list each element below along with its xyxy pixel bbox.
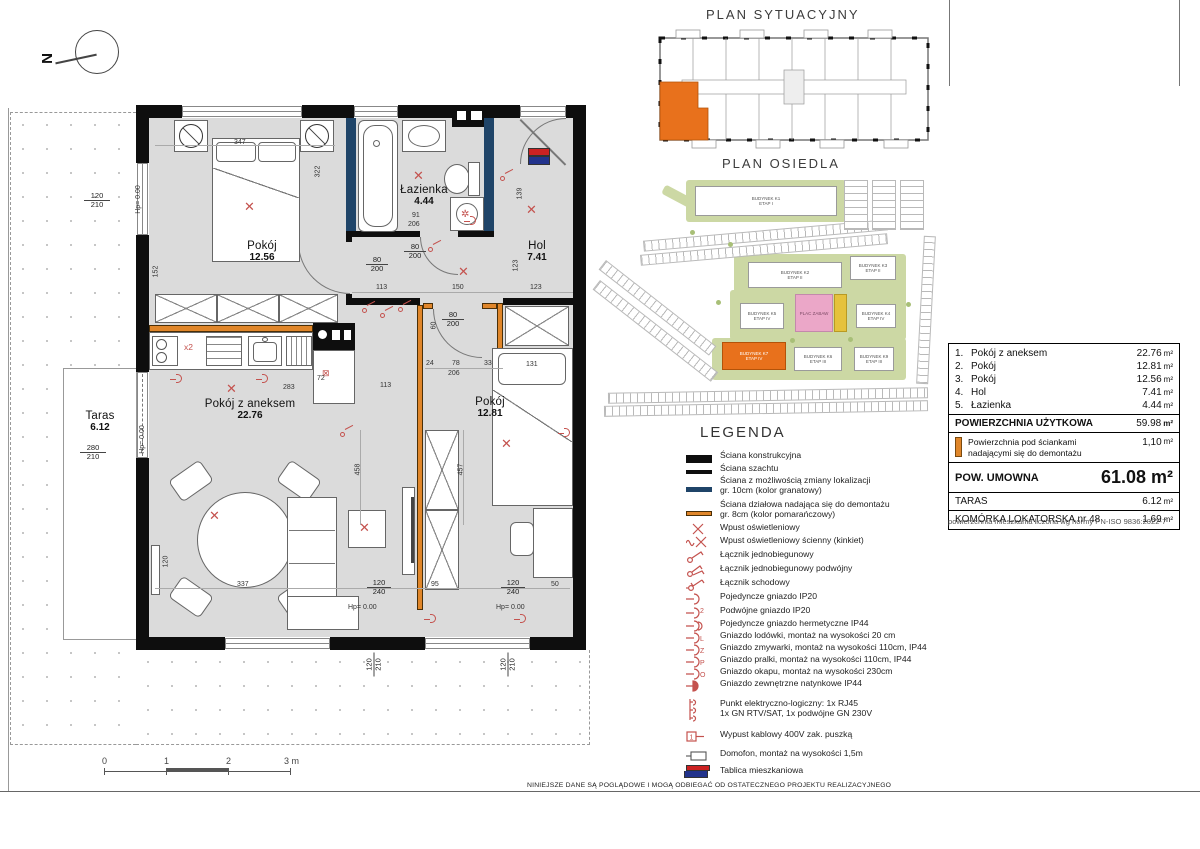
dimension-label: 283 (283, 384, 295, 391)
sheet-top-right-line (949, 0, 950, 86)
dimension-label: 80200 (404, 243, 426, 260)
wardrobe (155, 294, 217, 323)
dimension-label: 80200 (442, 311, 464, 328)
wall-segment (136, 637, 225, 650)
wall-segment (503, 298, 573, 305)
wall-orange-icon (686, 511, 712, 516)
orange-swatch-icon (955, 437, 962, 457)
legend-title: LEGENDA (700, 424, 786, 441)
light-x-icon: ✕ (209, 510, 220, 521)
wall-light-icon (686, 535, 712, 549)
rj45-point-icon (686, 698, 712, 722)
site-plan-title: PLAN SYTUACYJNY (706, 7, 860, 22)
toilet-tank (468, 162, 480, 196)
parking-column (916, 236, 936, 384)
room-label-aneks: Pokój z aneksem 22.76 (175, 398, 325, 421)
shaft-icon (318, 330, 327, 339)
usable-area-row: POWIERZCHNIA UŻYTKOWA 59.98m² (949, 414, 1179, 432)
oven (206, 336, 242, 366)
wall-segment (136, 458, 149, 650)
dimension-label: 120 (162, 556, 169, 568)
switch-icon (500, 176, 505, 181)
light-x-icon: ✕ (458, 266, 469, 277)
shaft-icon (332, 330, 340, 340)
dish-rack (286, 336, 312, 366)
dimension-label: 120210 (500, 653, 517, 677)
wall-navy-icon (686, 487, 712, 492)
table-row: 3.Pokój 12.56m² (949, 373, 1179, 386)
table-row: 2.Pokój 12.81m² (949, 360, 1179, 373)
service-building (834, 294, 847, 332)
dimension-label: 91 (412, 212, 420, 219)
building-k3: BUDYNEK K3ETAP II (850, 256, 896, 280)
orange-wall (482, 303, 497, 309)
dimension-label: 150 (452, 284, 464, 291)
sofa (287, 497, 337, 597)
fan-icon: ✲ (461, 209, 469, 220)
scale-bar-line (104, 771, 290, 772)
tree-icon (790, 338, 795, 343)
light-x-icon: ✕ (244, 201, 255, 212)
dimension-label: 95 (431, 581, 439, 588)
parking-column (900, 180, 924, 230)
dimension-label: 457 (457, 464, 464, 476)
table-row: 1.Pokój z aneksem 22.76m² (949, 344, 1179, 360)
orange-wall (417, 305, 423, 610)
scale-bar-tick (104, 768, 105, 775)
table-row: 4.Hol 7.41m² (949, 386, 1179, 399)
dimension-label: 458 (354, 464, 361, 476)
tenant-board-icon (684, 771, 708, 778)
switch-icon (398, 307, 403, 312)
dimension-label: 72 (317, 375, 325, 382)
orange-wall (497, 303, 503, 351)
dimension-label: 347 (234, 139, 246, 146)
shaft-icon (457, 111, 466, 120)
dim-line (352, 292, 573, 293)
x2-label: x2 (184, 342, 193, 353)
scale-tick-label: 2 (226, 756, 231, 766)
tv-icon (411, 497, 414, 563)
dimension-label: 80200 (366, 256, 388, 273)
scale-tick-label: 0 (102, 756, 107, 766)
room-label-lazienka: Łazienka 4.44 (388, 184, 460, 207)
switch-icon (380, 313, 385, 318)
room-label-taras: Taras 6.12 (68, 410, 132, 433)
scale-bar-tick (228, 768, 229, 775)
disclaimer: NINIEJSZE DANE SĄ POGLĄDOWE I MOGĄ ODBIE… (527, 782, 891, 789)
tree-icon (906, 302, 911, 307)
sheet-bottom-rule (0, 791, 1200, 792)
dimension-label: 120210 (84, 192, 110, 209)
washbasin-bowl (408, 125, 440, 147)
switch-icon (340, 432, 345, 437)
light-x-icon: ✕ (413, 170, 424, 181)
building-k5: BUDYNEK K5ETAP IV (740, 303, 784, 329)
navy-wall (346, 118, 356, 237)
building-k7-highlighted: BUDYNEK K7ETAP IV (722, 342, 786, 370)
dimension-label: 120240 (501, 579, 525, 596)
dimension-label: 113 (380, 382, 391, 389)
scale-bar-segment (166, 768, 228, 771)
dimension-label: 78 (452, 360, 460, 367)
wall-shaft-icon (686, 470, 712, 474)
wall-segment (488, 105, 520, 118)
wall-segment (136, 105, 149, 163)
estate-plan: BUDYNEK K1ETAP I BUDYNEK K2ETAP II BUDYN… (598, 172, 946, 415)
hob-burner-icon (156, 339, 167, 350)
dimension-label: Hp= 0.00 (139, 425, 146, 454)
light-x-icon: ✕ (526, 204, 537, 215)
dimension-label: Hp= 0.00 (348, 604, 377, 611)
tree-icon (716, 300, 721, 305)
switch-icon (362, 308, 367, 313)
dimension-label: 139 (516, 188, 523, 200)
room-label-hol: Hol 7.41 (512, 240, 562, 263)
dimension-label: 206 (408, 221, 420, 228)
window (225, 638, 330, 649)
building-k4: BUDYNEK K4ETAP IV (856, 304, 896, 328)
dimension-label: 322 (314, 166, 321, 178)
demountable-area-row: Powierzchnia pod ściankaminadającymi się… (949, 432, 1179, 462)
scale-tick-label: 3 m (284, 756, 299, 766)
sheet-right-line (1179, 0, 1180, 86)
bathtub-drain-icon (373, 140, 380, 147)
building-k2: BUDYNEK K2ETAP II (748, 262, 842, 288)
switch-icon (428, 247, 433, 252)
shaft-icon (344, 330, 351, 340)
dimension-label: 33 (484, 360, 492, 367)
tall-wardrobe (425, 510, 459, 590)
svg-text:1: 1 (690, 735, 694, 742)
svg-text:2: 2 (700, 608, 704, 615)
tree-icon (848, 337, 853, 342)
intercom-icon (686, 748, 712, 764)
wardrobe (279, 294, 338, 323)
socket-external-icon (686, 678, 712, 694)
window (182, 106, 302, 117)
dimension-label: 337 (237, 581, 249, 588)
area-table: 1.Pokój z aneksem 22.76m² 2.Pokój 12.81m… (948, 343, 1180, 530)
wardrobe (505, 306, 569, 346)
wall-segment (330, 637, 425, 650)
dimension-label: 123 (530, 284, 542, 291)
north-circle-icon (75, 30, 119, 74)
faucet-icon (262, 337, 268, 342)
tenant-board-icon (528, 148, 550, 156)
sofa-cushion-line (289, 530, 335, 531)
table-row: 5.Łazienka 4.44m² (949, 399, 1179, 414)
dimension-label: 24 (426, 360, 434, 367)
dimension-label: 280210 (80, 444, 106, 461)
window (425, 638, 530, 649)
desk (533, 508, 573, 578)
dimension-label: 152 (152, 266, 159, 278)
garden-area (136, 650, 590, 745)
dim-line (463, 430, 464, 525)
scale-bar-tick (290, 768, 291, 775)
playground: PLAC ZABAW (795, 294, 833, 332)
dim-line (360, 430, 361, 525)
orange-wall (423, 303, 433, 309)
light-x-icon (686, 522, 712, 536)
dimension-label: 206 (448, 370, 460, 377)
terrace-row: TARAS 6.12m² (949, 492, 1179, 510)
dimension-label: 120210 (366, 653, 383, 677)
pillow (498, 353, 566, 385)
tree-icon (728, 242, 733, 247)
sheet-left-border (8, 108, 9, 792)
switch-double-icon (686, 563, 712, 578)
orange-wall (149, 325, 313, 332)
building-k6: BUDYNEK K6ETAP III (794, 347, 842, 371)
dim-line (425, 368, 503, 369)
light-x-icon: ✕ (501, 438, 512, 449)
contract-area-row: POW. UMOWNA 61.08 m² (949, 462, 1179, 492)
wall-segment (458, 231, 494, 237)
entrance-threshold (520, 106, 566, 117)
north-letter: N (39, 53, 56, 64)
cable-outlet-icon: 1 (686, 729, 712, 745)
blueprint-sheet: N (0, 0, 1200, 849)
navy-wall (484, 118, 494, 237)
window (354, 106, 398, 117)
dimension-label: 123 (512, 260, 519, 272)
switch-stair-icon (686, 577, 712, 592)
building-k1: BUDYNEK K1ETAP I (695, 186, 837, 216)
dimension-label: Hp= 0.00 (135, 185, 142, 214)
wall-segment (398, 105, 452, 118)
wall-segment (573, 105, 586, 650)
dimension-label: 50 (551, 581, 559, 588)
scale-tick-label: 1 (164, 756, 169, 766)
light-x-icon: ✕ (226, 383, 237, 394)
tree-icon (690, 230, 695, 235)
room-label-pokoj1: Pokój 12.56 (212, 240, 312, 263)
parking-column (872, 180, 896, 230)
shaft-icon (471, 111, 482, 120)
building-k9: BUDYNEK K9ETAP III (854, 347, 894, 371)
bed-fold-line (213, 168, 299, 198)
hob-burner-icon (156, 352, 167, 363)
terrace (63, 368, 137, 640)
dimension-label: 131 (526, 361, 538, 368)
table-note: powierzchnia mieszkania liczona wg normy… (948, 517, 1180, 526)
sofa-cushion-line (289, 563, 335, 564)
estate-plan-title: PLAN OSIEDLA (722, 156, 840, 171)
room-label-pokoj2: Pokój 12.81 (452, 396, 528, 419)
parking-row (593, 280, 719, 382)
parking-column (844, 180, 868, 230)
site-plan (652, 22, 937, 150)
tenant-board-icon (528, 156, 550, 165)
wall-segment (136, 235, 149, 372)
dimension-label: 120240 (367, 579, 391, 596)
sofa-chaise (287, 596, 359, 630)
sink-basin (253, 342, 277, 362)
wardrobe (217, 294, 279, 323)
desk-chair (510, 522, 534, 556)
wall-segment (302, 105, 354, 118)
tall-wardrobe (425, 430, 459, 510)
dining-table (197, 492, 293, 588)
dimension-label: 60 (430, 322, 437, 330)
dimension-label: 113 (376, 284, 387, 291)
dimension-label: Hp= 0.00 (496, 604, 525, 611)
wall-structural-icon (686, 455, 712, 463)
switch-single-icon (686, 549, 712, 564)
